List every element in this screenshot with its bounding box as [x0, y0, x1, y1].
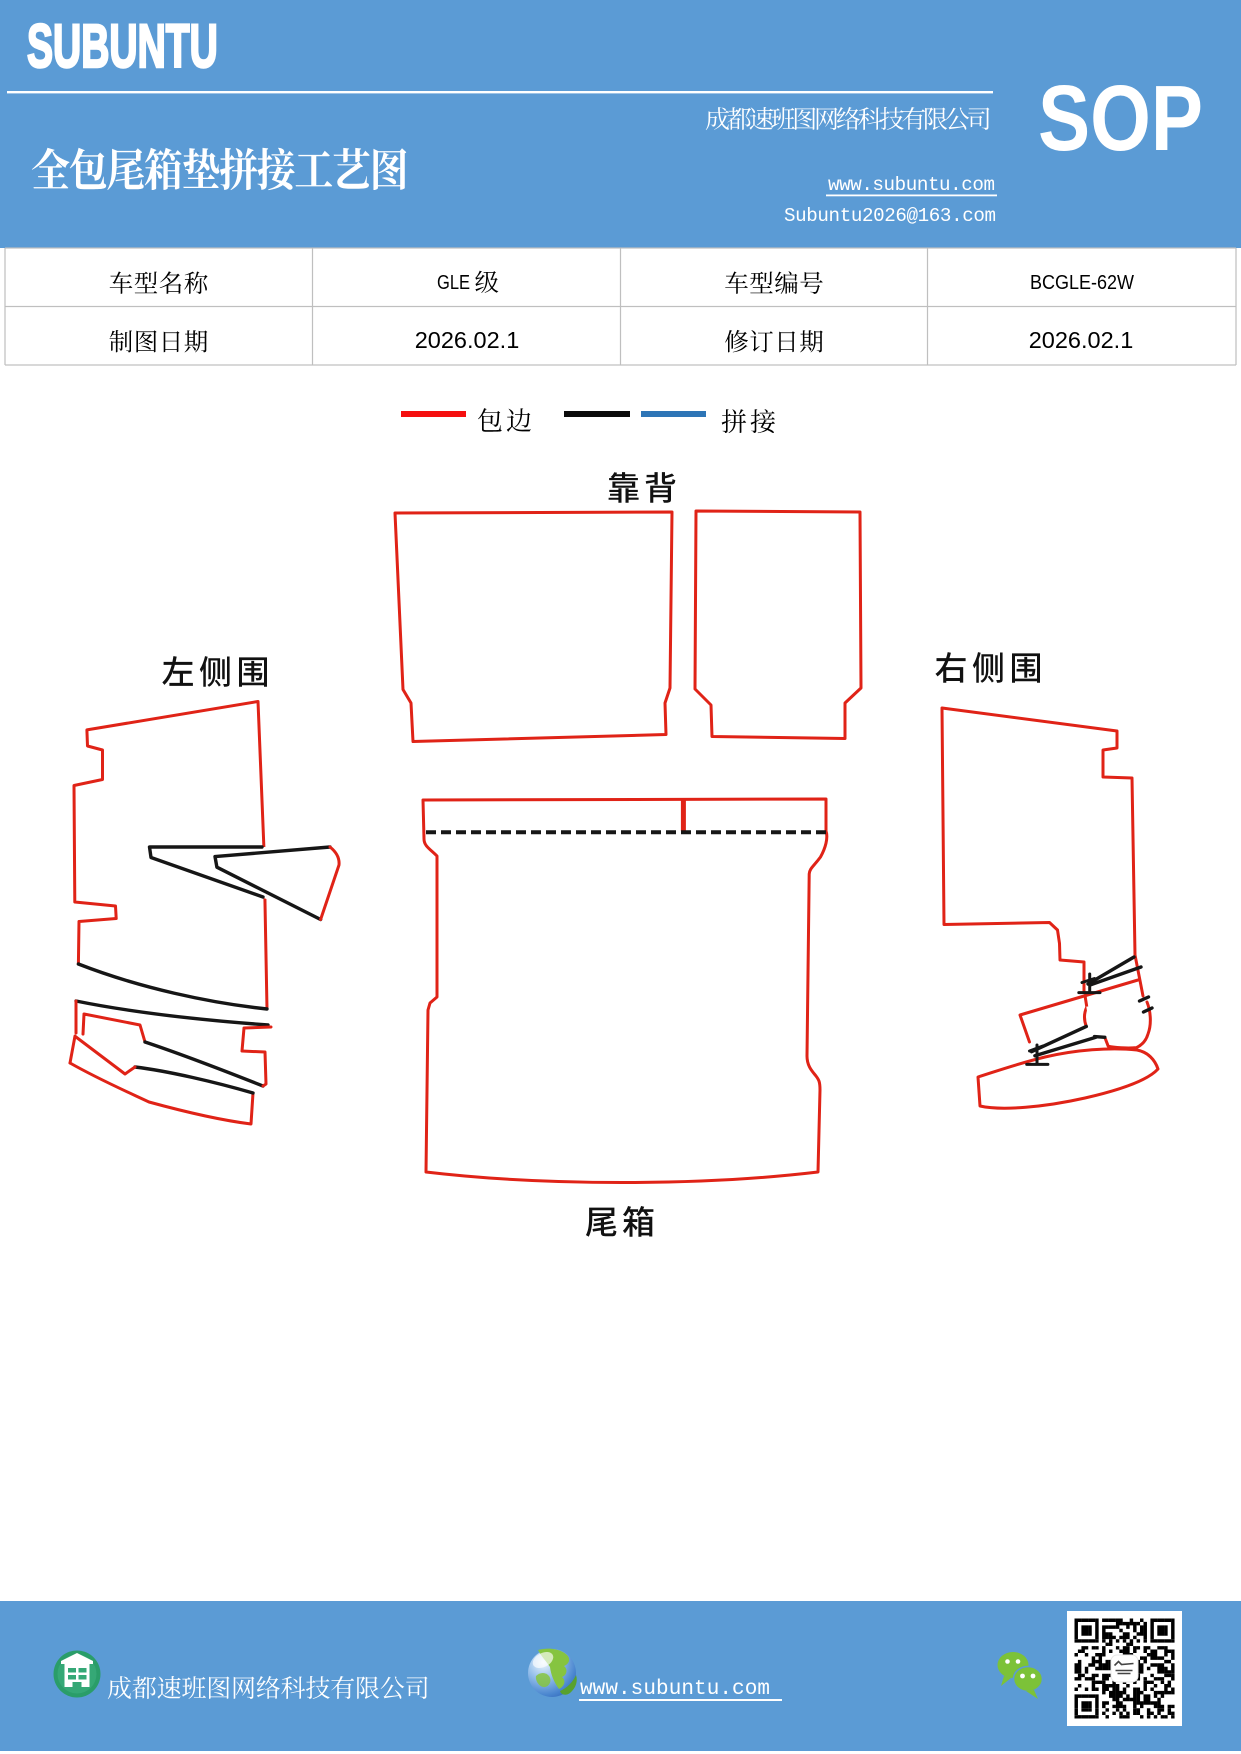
svg-text:Subuntu2026@163.com: Subuntu2026@163.com: [784, 205, 996, 227]
svg-text:www.subuntu.com: www.subuntu.com: [580, 1678, 770, 1701]
svg-text:2026.02.1: 2026.02.1: [1029, 327, 1134, 353]
svg-text:GLE: GLE: [437, 272, 470, 294]
svg-text:SUBUNTU: SUBUNTU: [27, 12, 218, 80]
svg-text:2026.02.1: 2026.02.1: [415, 327, 520, 353]
svg-text:www.subuntu.com: www.subuntu.com: [828, 174, 995, 196]
svg-text:SOP: SOP: [1038, 67, 1203, 171]
svg-text:BCGLE-62W: BCGLE-62W: [1030, 271, 1135, 294]
